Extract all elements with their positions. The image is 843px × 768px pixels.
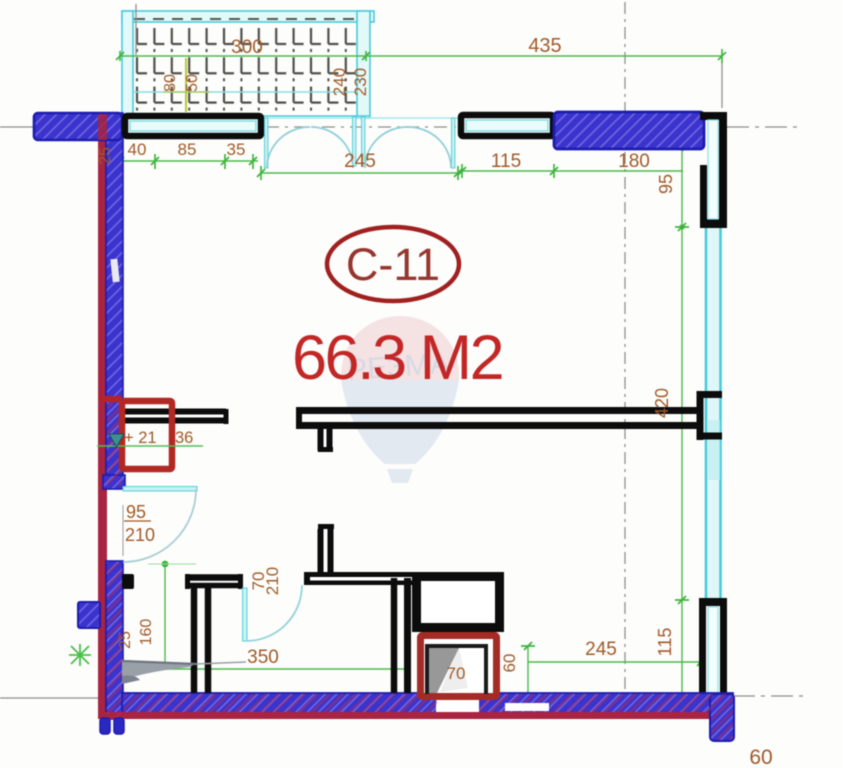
- svg-text:50: 50: [184, 74, 201, 92]
- svg-text:95: 95: [126, 502, 146, 522]
- svg-text:245: 245: [344, 151, 376, 172]
- svg-text:25: 25: [97, 147, 114, 165]
- svg-text:160: 160: [138, 619, 155, 646]
- svg-text:95: 95: [656, 174, 676, 194]
- svg-text:180: 180: [618, 151, 650, 172]
- svg-text:40: 40: [128, 140, 147, 159]
- svg-text:435: 435: [528, 35, 561, 57]
- svg-text:230: 230: [351, 68, 370, 96]
- svg-text:70: 70: [447, 664, 466, 683]
- svg-text:245: 245: [585, 639, 617, 660]
- svg-text:60: 60: [749, 746, 772, 768]
- svg-text:300: 300: [231, 37, 263, 58]
- svg-text:210: 210: [125, 525, 155, 545]
- svg-text:36: 36: [175, 429, 193, 447]
- svg-text:115: 115: [655, 628, 675, 657]
- svg-text:240: 240: [330, 68, 349, 96]
- svg-text:210: 210: [263, 567, 282, 595]
- svg-text:+ 21: + 21: [124, 429, 157, 447]
- svg-text:25: 25: [117, 631, 134, 649]
- svg-text:60: 60: [500, 654, 519, 673]
- svg-text:420: 420: [652, 388, 672, 418]
- svg-text:350: 350: [247, 647, 279, 668]
- svg-text:35: 35: [227, 140, 246, 159]
- svg-text:80: 80: [162, 74, 179, 92]
- svg-text:85: 85: [178, 140, 197, 159]
- svg-text:115: 115: [491, 151, 521, 172]
- svg-text:C-11: C-11: [346, 239, 440, 290]
- svg-text:66.3 M2: 66.3 M2: [292, 323, 502, 393]
